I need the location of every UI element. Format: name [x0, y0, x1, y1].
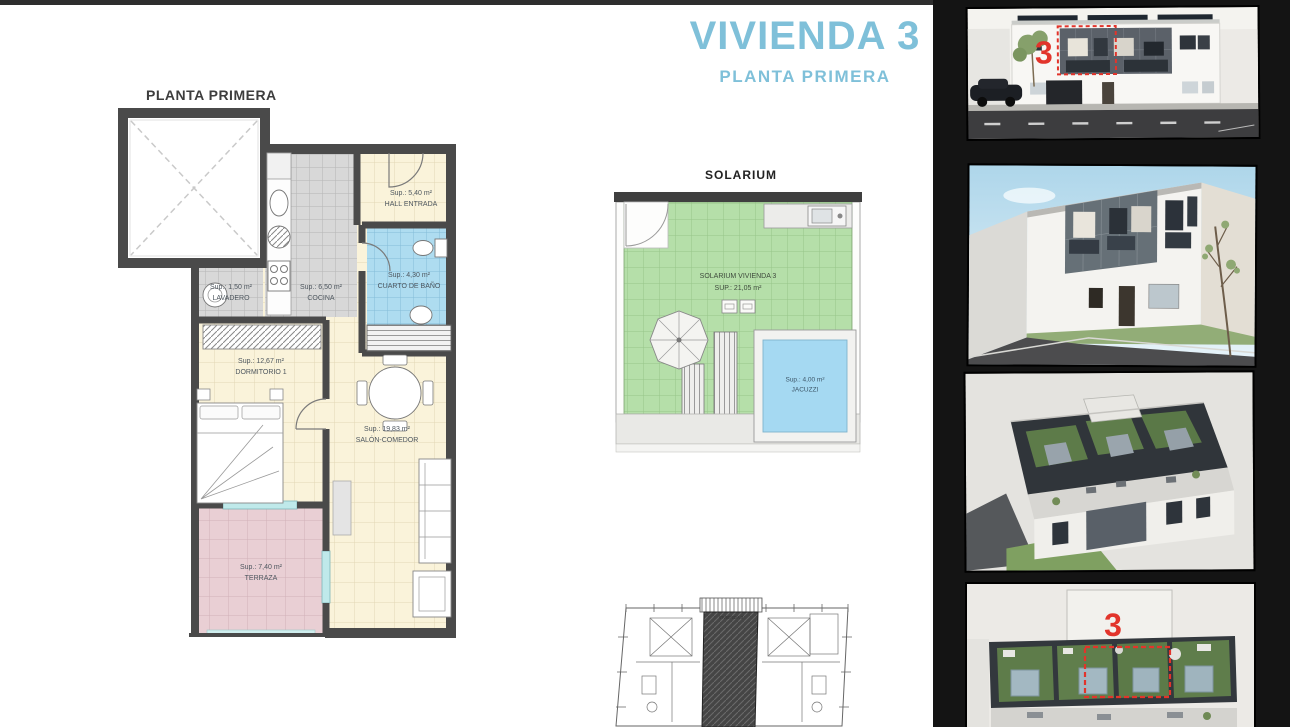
jacuzzi-label: Sup.: 4,00 m²JACUZZI — [785, 376, 824, 397]
highlighted-unit — [702, 612, 758, 727]
render-street-perspective — [968, 165, 1255, 365]
solarium-wall — [614, 192, 862, 202]
photo-strip: 3 — [933, 0, 1290, 727]
stair-box — [1084, 395, 1142, 422]
rooftop-jacuzzi — [1133, 668, 1159, 692]
key-plan-unit-label: VIVIENDA 3 — [719, 615, 744, 620]
rooftop-top-view-illustration: 3 — [967, 584, 1254, 727]
label-hall: Sup.: 5,40 m²HALL ENTRADA — [385, 188, 438, 210]
kitchen-fittings — [267, 153, 291, 315]
road — [968, 109, 1258, 139]
tv-unit — [333, 481, 351, 535]
label-bathroom: Sup.: 4,30 m²CUARTO DE BAÑO — [378, 270, 441, 292]
rooftop-jacuzzi — [1079, 668, 1107, 694]
bed — [197, 389, 283, 503]
page-title: VIVIENDA 3 — [640, 14, 970, 59]
parasol — [650, 311, 708, 369]
wardrobe — [203, 325, 321, 349]
unit-marker: 3 — [1104, 607, 1122, 643]
unit-marker: 3 — [1035, 34, 1053, 70]
street-perspective-illustration — [968, 165, 1255, 365]
window — [322, 551, 330, 603]
sun-lounger — [682, 364, 704, 420]
title-block: VIVIENDA 3 PLANTA PRIMERA — [640, 14, 970, 87]
label-bedroom: Sup.: 12,67 m²DORMITORIO 1 — [235, 356, 286, 378]
render-rooftop-top-view: 3 — [967, 584, 1254, 727]
key-plan: VIVIENDA 3 — [612, 592, 862, 727]
entry-door — [1119, 286, 1135, 326]
label-living: Sup.: 19,83 m²SALÓN-COMEDOR — [356, 424, 419, 446]
floor-plan-heading: PLANTA PRIMERA — [146, 87, 277, 103]
label-laundry: Sup.: 1,50 m²LAVADERO — [210, 282, 252, 304]
aerial-view-illustration — [965, 372, 1253, 571]
sun-lounger — [714, 332, 737, 420]
key-plan-drawing: VIVIENDA 3 — [612, 592, 862, 727]
render-aerial-view — [965, 372, 1253, 571]
solarium-plan: SOLARIUM — [612, 168, 870, 465]
solarium-label: SOLARIUM VIVIENDA 3SUP.: 21,05 m² — [700, 271, 777, 295]
render-front-elevation: 3 — [968, 7, 1259, 139]
solarium-sink-counter — [764, 204, 852, 228]
washbasin — [410, 306, 432, 324]
cooktop — [268, 261, 290, 291]
garage-door — [1046, 80, 1082, 104]
rooftop-jacuzzi — [1011, 670, 1039, 696]
brochure-page: VIVIENDA 3 PLANTA PRIMERA PLANTA PRIMERA — [0, 0, 1290, 727]
solarium-drawing — [612, 188, 870, 460]
toilet — [413, 241, 433, 256]
stair-core — [700, 598, 762, 612]
front-elevation-illustration: 3 — [968, 7, 1259, 139]
armchair — [413, 571, 451, 617]
bathtub — [367, 325, 451, 351]
rooftop-jacuzzi — [1185, 666, 1213, 692]
page-subtitle: PLANTA PRIMERA — [640, 67, 970, 87]
entry-door — [1102, 82, 1114, 104]
floor-plan-drawing — [115, 103, 465, 648]
solarium-heading: SOLARIUM — [612, 168, 870, 188]
label-terrace: Sup.: 7,40 m²TERRAZA — [240, 562, 282, 584]
floor-plan: Sup.: 5,40 m²HALL ENTRADA Sup.: 4,30 m²C… — [115, 103, 465, 648]
kitchen-sink — [270, 190, 288, 216]
label-kitchen: Sup.: 6,50 m²COCINA — [300, 282, 342, 304]
sofa — [419, 459, 451, 563]
